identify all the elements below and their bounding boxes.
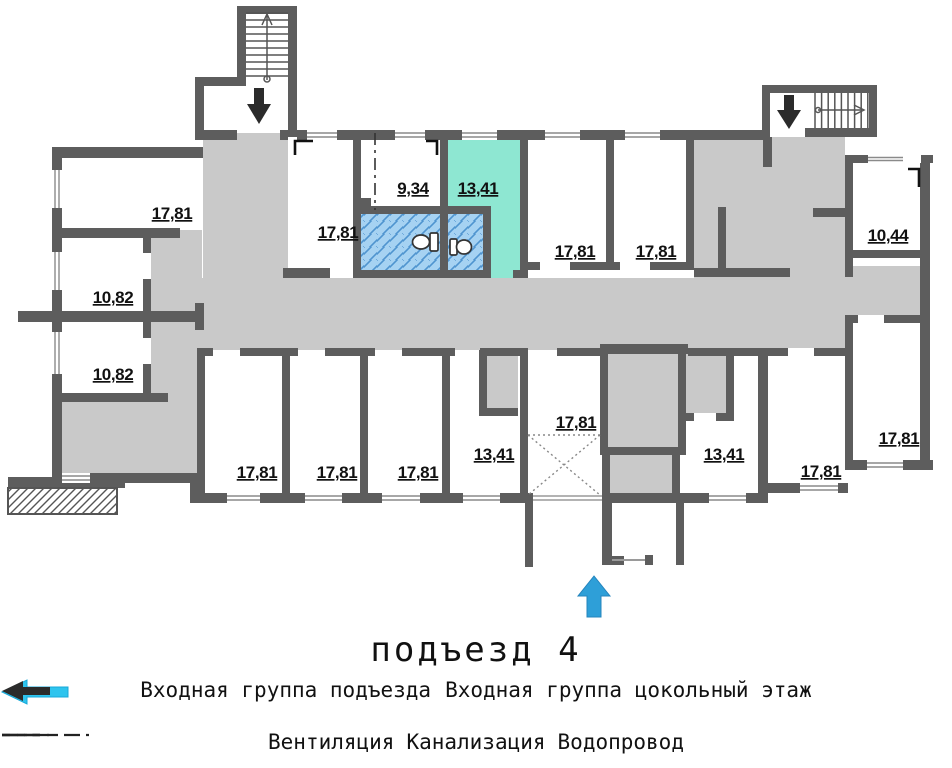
dashed-line-icon	[0, 730, 64, 740]
legend-item-entrance-group: Входная группа подъезда	[140, 678, 431, 702]
room-area-label: 10,44	[868, 226, 909, 245]
stair-down-arrow-icon-right	[777, 95, 801, 129]
room-area-label: 17,81	[237, 463, 278, 482]
room-area-label: 17,81	[801, 462, 842, 481]
legend-item-basement-group: Входная группа цокольный этаж	[445, 678, 812, 702]
floor-plan-page: 17,81 10,82 10,82 17,81 9,34 13,41 17,81…	[0, 0, 952, 768]
entrance-title: подъезд 4	[0, 630, 952, 670]
room-area-label: 17,81	[317, 463, 358, 482]
legend-item-water: Водопровод	[558, 730, 684, 754]
stair-down-arrow-icon-left	[247, 88, 271, 124]
room-area-label: 17,81	[555, 242, 596, 261]
room-area-label: 13,41	[704, 445, 745, 464]
shaft-x-marks	[528, 435, 600, 495]
sink-icon	[450, 239, 472, 255]
legend-basement-group-label: Входная группа цокольный этаж	[445, 678, 812, 702]
staircase-top-left	[246, 13, 288, 82]
room-area-label: 17,81	[152, 204, 193, 223]
room-area-label: 17,81	[879, 429, 920, 448]
legend-lines: Вентиляция Канализация Водопровод	[0, 730, 952, 754]
room-area-label: 10,82	[93, 288, 134, 307]
toilet-icon	[413, 233, 439, 251]
room-area-label: 10,82	[93, 365, 134, 384]
room-area-label: 17,81	[636, 242, 677, 261]
entrance-ramp	[8, 488, 117, 514]
legend-ventilation-label: Вентиляция	[268, 730, 394, 754]
black-left-arrow-icon	[0, 678, 52, 704]
legend-entrances: Входная группа подъезда Входная группа ц…	[0, 678, 952, 702]
staircase-top-right	[815, 93, 868, 128]
room-area-label: 17,81	[398, 463, 439, 482]
room-area-label: 9,34	[397, 179, 429, 198]
legend-item-ventilation: Вентиляция	[268, 730, 394, 754]
room-area-label: 17,81	[556, 413, 597, 432]
legend-water-label: Водопровод	[558, 730, 684, 754]
legend-entrance-group-label: Входная группа подъезда	[140, 678, 431, 702]
room-area-label: 13,41	[458, 179, 499, 198]
legend-item-sewerage: Канализация	[406, 730, 545, 754]
room-area-label: 13,41	[474, 445, 515, 464]
entrance-up-arrow-icon	[578, 576, 610, 617]
room-area-label: 17,81	[318, 223, 359, 242]
legend-sewerage-label: Канализация	[406, 730, 545, 754]
